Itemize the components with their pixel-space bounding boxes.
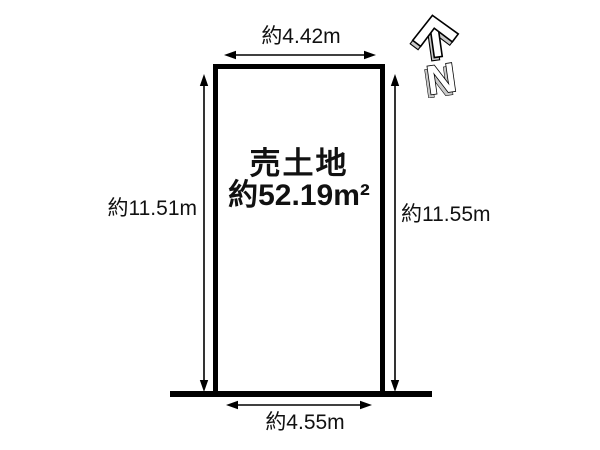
right-dimension-label: 約11.55m	[401, 203, 551, 227]
road-boundary-line	[170, 391, 432, 397]
bottom-dimension-arrow	[226, 398, 372, 412]
north-compass-icon: N N	[409, 12, 465, 98]
left-dimension-arrow	[197, 74, 211, 392]
north-letter: N	[423, 54, 459, 98]
bottom-dimension-label: 約4.55m	[205, 411, 405, 435]
plot-outline	[213, 64, 385, 397]
top-dimension-label: 約4.42m	[201, 25, 401, 49]
right-dimension-arrow	[388, 74, 402, 392]
plot-label: 売土地 約52.19m²	[216, 147, 382, 212]
top-dimension-arrow	[224, 48, 376, 62]
land-plot-diagram: 約4.42m 売土地 約52.19m² 約11.51m 約11.55m 約4.5…	[0, 0, 600, 450]
plot-area-label: 約52.19m²	[216, 180, 382, 212]
left-dimension-label: 約11.51m	[55, 197, 197, 221]
plot-type-label: 売土地	[216, 147, 382, 180]
